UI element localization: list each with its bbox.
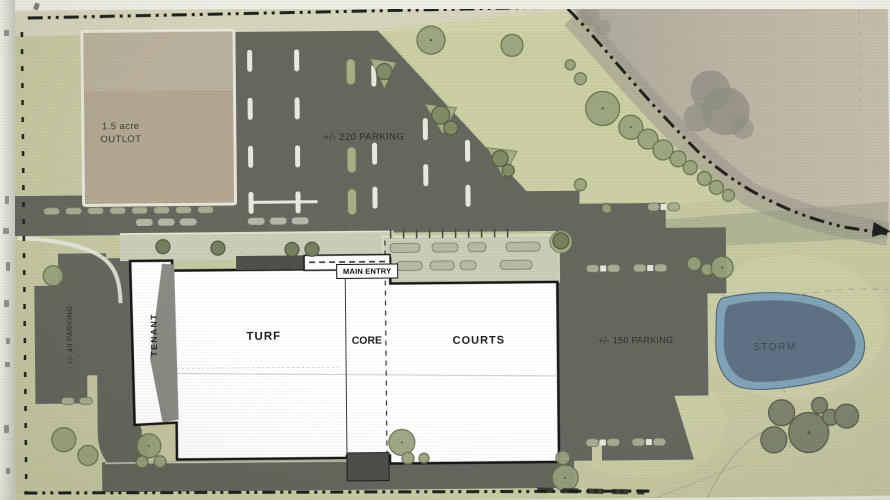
canopy-dark xyxy=(236,255,306,270)
service-notch xyxy=(347,453,389,481)
main-entry-label: MAIN ENTRY xyxy=(336,263,398,279)
site-plan-scan: 1.5 acre OUTLOT +/- 220 PARKING +/- 150 … xyxy=(0,0,890,500)
scan-edge-left xyxy=(0,0,15,500)
building-footprint xyxy=(130,257,559,466)
scan-edge-top xyxy=(0,0,890,9)
site-plan-drawing xyxy=(0,0,890,500)
plan-sheet: 1.5 acre OUTLOT +/- 220 PARKING +/- 150 … xyxy=(0,0,890,500)
outlot-pad xyxy=(82,30,236,205)
